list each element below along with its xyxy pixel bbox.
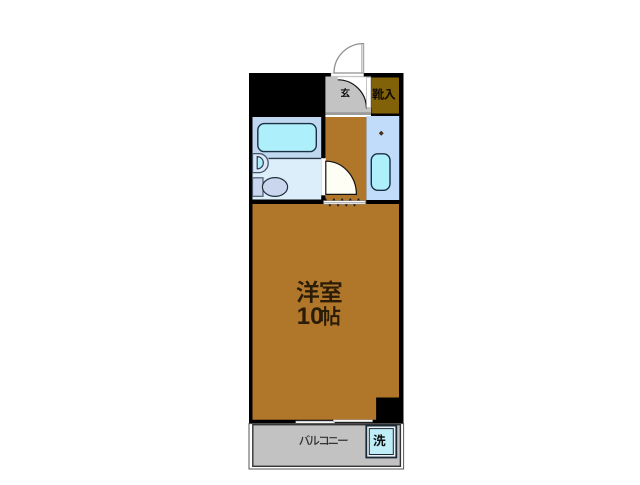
svg-text:10: 10 (297, 303, 324, 330)
